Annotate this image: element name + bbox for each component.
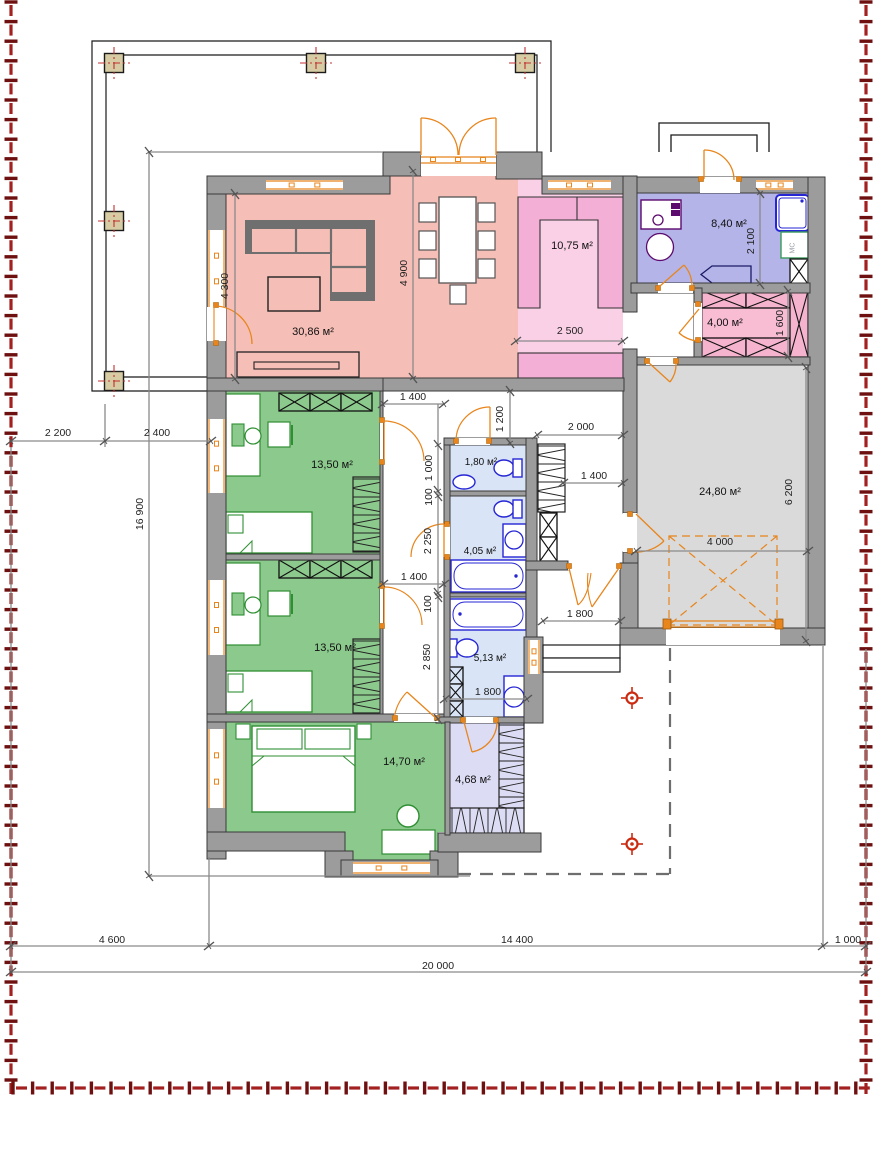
svg-text:1 400: 1 400 [581, 470, 607, 482]
svg-text:1 000: 1 000 [835, 934, 861, 946]
svg-text:13,50 м²: 13,50 м² [314, 642, 356, 654]
svg-text:6 200: 6 200 [783, 479, 795, 505]
svg-text:13,50 м²: 13,50 м² [311, 459, 353, 471]
svg-text:1 400: 1 400 [401, 571, 427, 583]
svg-text:16 900: 16 900 [134, 498, 146, 530]
svg-text:1 800: 1 800 [567, 608, 593, 620]
svg-text:2 000: 2 000 [568, 421, 594, 433]
svg-text:4,68 м²: 4,68 м² [455, 774, 491, 786]
svg-text:MC: MC [790, 243, 797, 254]
svg-text:4 600: 4 600 [99, 934, 125, 946]
svg-text:100: 100 [423, 488, 435, 506]
svg-text:14 400: 14 400 [501, 934, 533, 946]
svg-text:100: 100 [422, 595, 434, 613]
svg-text:2 500: 2 500 [557, 325, 583, 337]
svg-text:1 400: 1 400 [400, 391, 426, 403]
svg-text:1 000: 1 000 [423, 455, 435, 481]
svg-text:2 200: 2 200 [45, 427, 71, 439]
svg-text:1 200: 1 200 [494, 406, 506, 432]
svg-text:2 400: 2 400 [144, 427, 170, 439]
svg-text:4,05 м²: 4,05 м² [464, 546, 497, 557]
svg-text:5,13 м²: 5,13 м² [474, 653, 507, 664]
svg-text:30,86 м²: 30,86 м² [292, 326, 334, 338]
svg-text:2 250: 2 250 [422, 528, 434, 554]
svg-text:2 850: 2 850 [421, 644, 433, 670]
svg-text:4 000: 4 000 [707, 536, 733, 548]
svg-text:4,00 м²: 4,00 м² [707, 317, 743, 329]
svg-text:8,40 м²: 8,40 м² [711, 218, 747, 230]
svg-text:1 600: 1 600 [774, 310, 786, 336]
svg-text:24,80 м²: 24,80 м² [699, 486, 741, 498]
svg-text:20 000: 20 000 [422, 960, 454, 972]
svg-text:2 100: 2 100 [745, 228, 757, 254]
svg-text:4 300: 4 300 [219, 273, 231, 299]
svg-text:1 800: 1 800 [475, 686, 501, 698]
svg-text:10,75 м²: 10,75 м² [551, 240, 593, 252]
svg-text:1,80 м²: 1,80 м² [465, 457, 498, 468]
svg-text:4 900: 4 900 [398, 260, 410, 286]
svg-text:14,70 м²: 14,70 м² [383, 756, 425, 768]
